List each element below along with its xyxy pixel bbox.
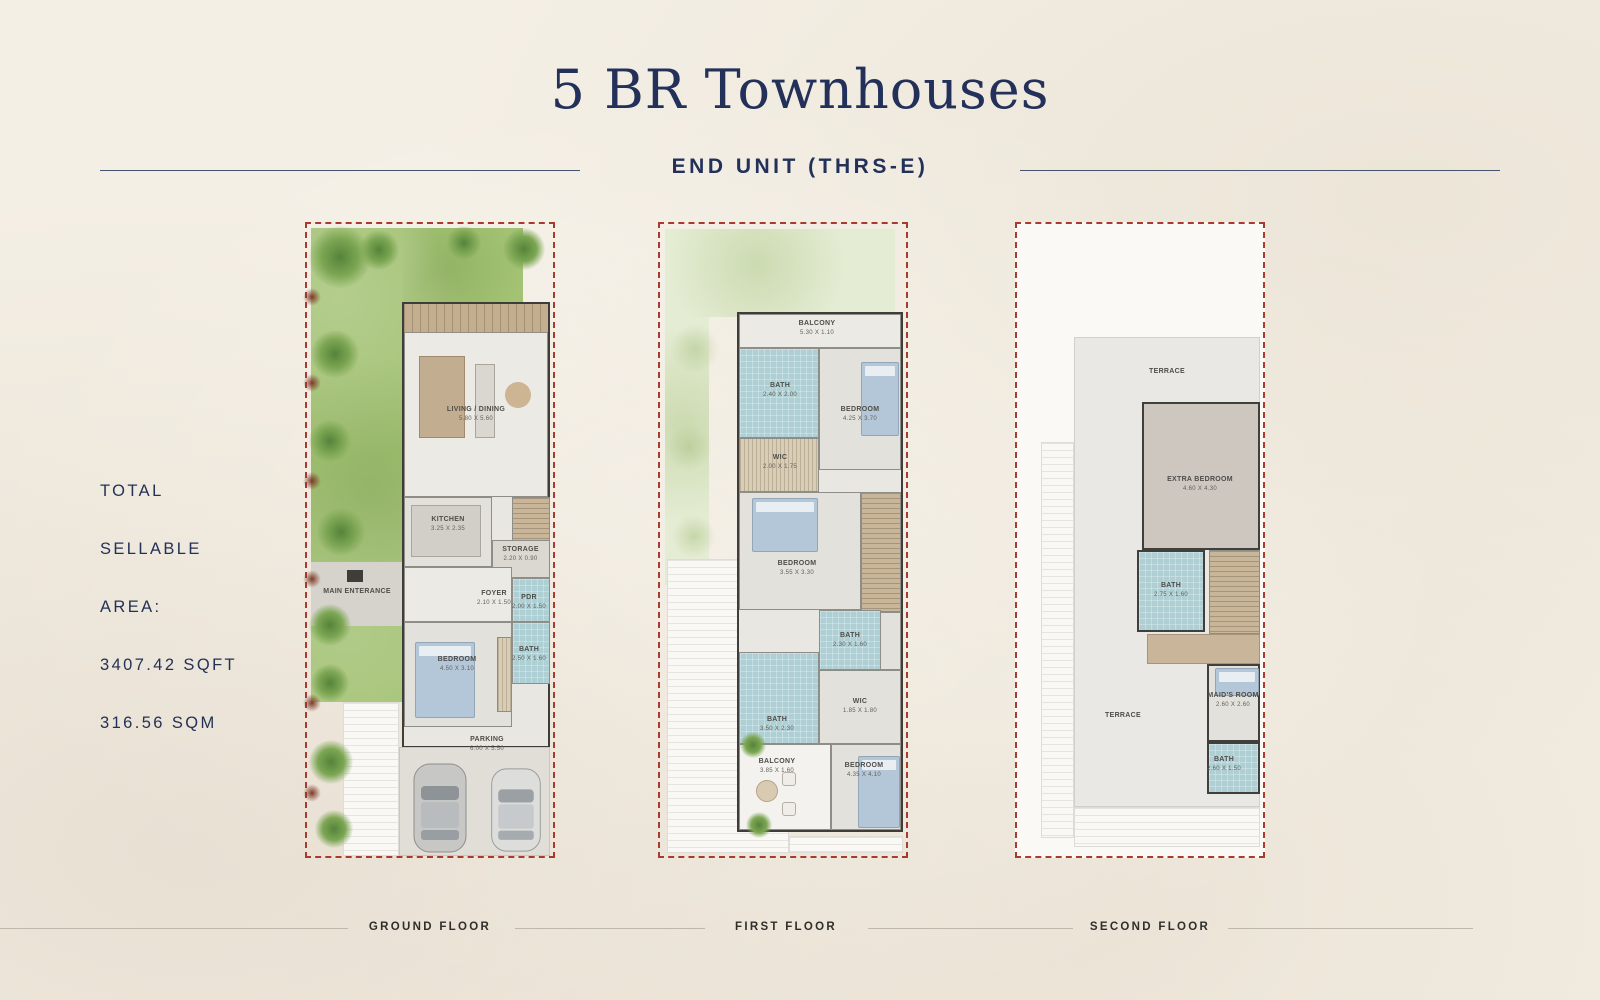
balcony-table xyxy=(756,780,778,802)
tree xyxy=(309,740,353,784)
room-label-bath-2: BATH2.60 X 1.50 xyxy=(1189,756,1259,773)
room-label-wic-2: WIC1.85 X 1.80 xyxy=(822,698,898,715)
room-label-bath: BATH2.50 X 1.60 xyxy=(507,646,551,663)
staircase xyxy=(1209,550,1260,634)
room-label-main-entrance: MAIN ENTERANCE xyxy=(319,588,395,597)
room-label-bath-1: BATH2.75 X 1.60 xyxy=(1133,582,1209,599)
room-label-bedroom-2: BEDROOM3.55 X 3.30 xyxy=(757,560,837,577)
deck-left xyxy=(1041,442,1074,838)
room-label-balcony-top: BALCONY5.30 X 1.10 xyxy=(757,320,877,337)
brochure-page: 5 BR Townhouses END UNIT (THRS-E) TOTAL … xyxy=(0,0,1600,1000)
info-line: SELLABLE xyxy=(100,535,237,564)
landing xyxy=(1147,634,1260,664)
room-label-kitchen: KITCHEN3.25 X 2.35 xyxy=(408,516,488,533)
info-line: TOTAL xyxy=(100,477,237,506)
caption-first-floor: FIRST FLOOR xyxy=(735,921,837,933)
tree xyxy=(309,604,351,646)
tree xyxy=(315,810,353,848)
room-label-parking: PARKING6.00 X 5.50 xyxy=(447,736,527,753)
room-label-storage: STORAGE2.20 X 0.90 xyxy=(489,546,552,563)
room-label-bath-2: BATH2.30 X 1.60 xyxy=(812,632,888,649)
entry-mat xyxy=(347,570,363,582)
bush xyxy=(303,374,321,392)
foliage-wash xyxy=(670,324,720,374)
room-label-terrace-left: TERRACE xyxy=(1083,712,1163,721)
room-label-bedroom-3: BEDROOM4.35 X 4.10 xyxy=(824,762,904,779)
bush xyxy=(303,570,321,588)
foliage-wash xyxy=(672,514,716,558)
subtitle-rule-left xyxy=(100,170,580,171)
bush xyxy=(303,288,321,306)
dining-table xyxy=(419,356,465,438)
caption-ground-floor: GROUND FLOOR xyxy=(369,921,491,933)
subtitle-rule-right xyxy=(1020,170,1500,171)
deck-strip-bottom xyxy=(789,836,903,853)
bed xyxy=(861,362,899,436)
caption-rule xyxy=(868,928,1073,929)
total-sellable-area: TOTAL SELLABLE AREA: 3407.42 SQFT 316.56… xyxy=(100,448,237,767)
car-icon xyxy=(410,762,470,854)
room-label-balcony-bottom: BALCONY3.85 X 1.60 xyxy=(742,758,812,775)
tree xyxy=(503,228,545,270)
room-label-living-dining: LIVING / DINING5.80 X 5.60 xyxy=(402,406,550,423)
room-label-wic-1: WIC2.00 X 1.75 xyxy=(752,454,808,471)
coffee-table xyxy=(505,382,531,408)
planter xyxy=(746,812,772,838)
bush xyxy=(303,784,321,802)
planter xyxy=(740,732,766,758)
garden-wash-top xyxy=(665,229,895,317)
bed xyxy=(415,642,475,718)
tree xyxy=(447,226,481,260)
room-label-extra-bedroom: EXTRA BEDROOM4.60 X 4.30 xyxy=(1150,476,1250,493)
caption-rule xyxy=(1228,928,1473,929)
bush xyxy=(303,694,321,712)
room-label-bath-1: BATH2.40 X 2.00 xyxy=(748,382,812,399)
sofa xyxy=(475,364,495,438)
room-label-bedroom: BEDROOM4.50 X 3.10 xyxy=(412,656,502,673)
tree xyxy=(309,420,351,462)
deck-bottom xyxy=(1074,807,1260,847)
floor-plan-second: TERRACE EXTRA BEDROOM4.60 X 4.30 BATH2.7… xyxy=(1015,222,1265,858)
car-icon xyxy=(487,767,545,853)
caption-rule xyxy=(515,928,705,929)
wood-deck xyxy=(404,304,548,332)
caption-second-floor: SECOND FLOOR xyxy=(1090,921,1210,933)
floor-plan-first: BALCONY5.30 X 1.10 BATH2.40 X 2.00 BEDRO… xyxy=(658,222,908,858)
room-label-bedroom-1: BEDROOM4.25 X 3.70 xyxy=(820,406,900,423)
bed xyxy=(752,498,818,552)
unit-subtitle: END UNIT (THRS-E) xyxy=(0,155,1600,179)
info-line: 3407.42 SQFT xyxy=(100,651,237,680)
page-title: 5 BR Townhouses xyxy=(0,58,1600,121)
info-line: AREA: xyxy=(100,593,237,622)
balcony-chair xyxy=(782,802,796,816)
tree xyxy=(311,330,359,378)
foliage-wash xyxy=(666,424,712,470)
staircase xyxy=(861,492,901,612)
floor-plan-ground: LIVING / DINING5.80 X 5.60 KITCHEN3.25 X… xyxy=(305,222,555,858)
caption-rule xyxy=(0,928,348,929)
info-line: 316.56 SQM xyxy=(100,709,237,738)
room-label-bath-3: BATH3.50 X 2.30 xyxy=(739,716,815,733)
tree xyxy=(317,508,365,556)
room-label-terrace-top: TERRACE xyxy=(1107,368,1227,377)
bush xyxy=(303,472,321,490)
room-label-pdr: PDR2.00 X 1.50 xyxy=(507,594,551,611)
room-label-maids-room: MAID'S ROOM2.60 X 2.60 xyxy=(1195,692,1271,709)
tree xyxy=(359,230,399,270)
